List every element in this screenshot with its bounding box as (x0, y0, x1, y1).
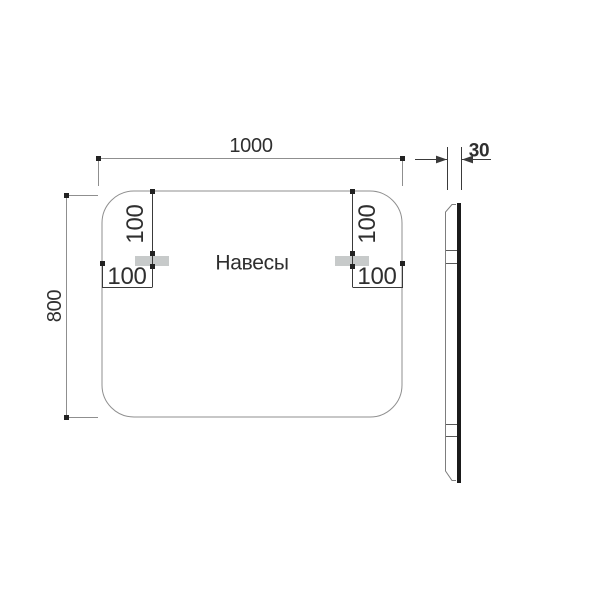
thickness-dimension-label: 30 (469, 142, 490, 161)
hangers-caption: Навесы (215, 253, 288, 274)
hanger-left-top-offset-label: 100 (124, 204, 148, 243)
dimension-endpoint-dot (350, 251, 355, 256)
side-view-mirror-face-edge (457, 203, 461, 483)
thickness-arrowhead-right-pointing (436, 156, 447, 164)
dimension-endpoint-dot (150, 264, 155, 269)
hanger-right-top-offset-label: 100 (356, 204, 380, 243)
dimension-endpoint-dot (350, 264, 355, 269)
side-view-back-outline (446, 205, 457, 481)
height-dimension-line (67, 196, 99, 418)
hanger-left-side-offset-label: 100 (107, 265, 146, 289)
dimension-endpoint-dot (150, 251, 155, 256)
dimension-endpoint-dot (150, 189, 155, 194)
dimension-endpoint-dot (64, 193, 69, 198)
dimension-endpoint-dot (400, 156, 405, 161)
width-dimension-line (99, 159, 403, 187)
dimension-endpoint-dot (96, 156, 101, 161)
height-dimension-label: 800 (45, 290, 65, 322)
side-view (446, 203, 462, 483)
dimension-endpoint-dot (100, 261, 105, 266)
mirror-technical-drawing: 1000 800 100 100 100 100 Навесы 30 (0, 0, 600, 600)
dimension-endpoint-dot (350, 189, 355, 194)
dimension-endpoint-dot (400, 261, 405, 266)
width-dimension-label: 1000 (229, 136, 272, 156)
width-dimension (96, 156, 405, 186)
dimension-endpoint-dot (64, 415, 69, 420)
hanger-right-side-offset-label: 100 (357, 265, 396, 289)
height-dimension (64, 193, 98, 420)
drawing-linework (0, 0, 600, 600)
